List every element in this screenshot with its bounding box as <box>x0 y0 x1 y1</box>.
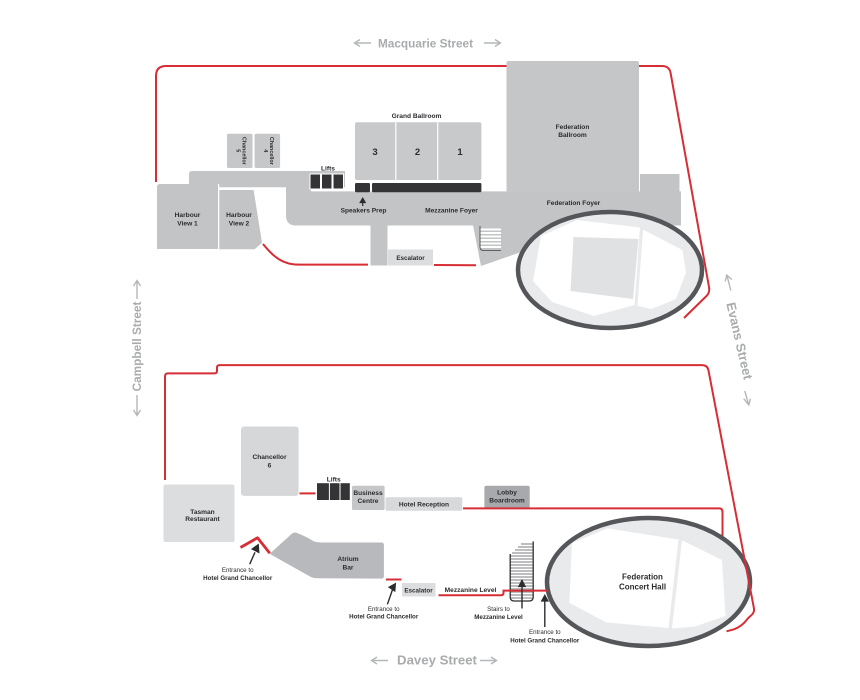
svg-text:Bar: Bar <box>343 564 354 571</box>
svg-text:Speakers Prep: Speakers Prep <box>341 208 387 215</box>
svg-text:Hotel Reception: Hotel Reception <box>399 501 449 508</box>
svg-text:Hotel Grand Chancellor: Hotel Grand Chancellor <box>510 637 580 644</box>
svg-text:Entrance to: Entrance to <box>529 629 561 636</box>
svg-text:Harbour: Harbour <box>226 212 252 219</box>
svg-text:1: 1 <box>457 147 463 158</box>
svg-text:Escalator: Escalator <box>396 255 425 262</box>
svg-text:Boardroom: Boardroom <box>489 498 525 505</box>
svg-text:Grand Ballroom: Grand Ballroom <box>392 113 442 120</box>
svg-text:Tasman: Tasman <box>190 509 214 516</box>
svg-text:Ballroom: Ballroom <box>558 132 587 139</box>
svg-text:4: 4 <box>262 149 268 152</box>
svg-text:Lifts: Lifts <box>321 166 335 173</box>
svg-text:Mezzanine Foyer: Mezzanine Foyer <box>425 208 478 215</box>
svg-text:Stairs to: Stairs to <box>487 606 510 613</box>
svg-text:Federation Foyer: Federation Foyer <box>547 200 601 207</box>
svg-text:Hotel Grand Chancellor: Hotel Grand Chancellor <box>203 575 273 582</box>
svg-text:6: 6 <box>268 463 272 470</box>
svg-text:Lobby: Lobby <box>497 490 517 497</box>
svg-text:View 1: View 1 <box>177 221 198 228</box>
svg-text:Centre: Centre <box>358 498 379 505</box>
svg-text:Federation: Federation <box>622 573 663 582</box>
svg-text:Federation: Federation <box>556 124 590 131</box>
svg-text:Campbell Street: Campbell Street <box>130 302 144 392</box>
svg-text:Davey Street: Davey Street <box>397 653 478 668</box>
svg-text:Business: Business <box>353 490 383 497</box>
svg-text:3: 3 <box>372 147 377 158</box>
svg-text:Escalator: Escalator <box>404 587 433 594</box>
svg-text:Chancellor: Chancellor <box>252 454 287 461</box>
svg-text:View 2: View 2 <box>229 221 250 228</box>
svg-text:Macquarie Street: Macquarie Street <box>378 37 473 51</box>
svg-text:5: 5 <box>235 149 241 152</box>
svg-text:Harbour: Harbour <box>175 212 201 219</box>
svg-text:Entrance to: Entrance to <box>222 567 254 574</box>
svg-text:Atrium: Atrium <box>337 556 358 563</box>
svg-text:Mezzanine Level: Mezzanine Level <box>445 587 497 594</box>
svg-text:Entrance to: Entrance to <box>368 606 400 613</box>
svg-text:Hotel Grand Chancellor: Hotel Grand Chancellor <box>349 613 419 620</box>
svg-text:2: 2 <box>415 147 420 158</box>
svg-text:Mezzanine Level: Mezzanine Level <box>474 614 523 621</box>
svg-text:Lifts: Lifts <box>327 476 341 483</box>
svg-text:Concert Hall: Concert Hall <box>619 582 666 591</box>
svg-text:Restaurant: Restaurant <box>185 516 220 523</box>
